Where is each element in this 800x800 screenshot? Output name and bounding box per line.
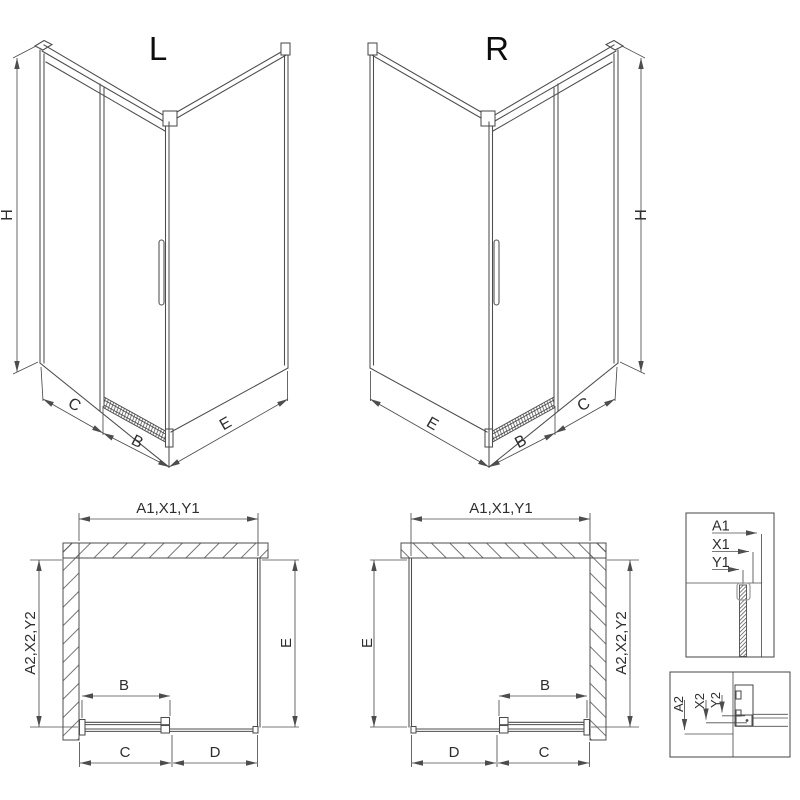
- plan-left-width-label: A1,X1,Y1: [136, 500, 199, 517]
- shower-3d-geometry: [13, 41, 290, 469]
- plan-right-side-label: E: [359, 638, 376, 648]
- left-3d-view-labels: L H C B E: [0, 30, 235, 452]
- corner-cap: [163, 111, 177, 126]
- figure-canvas: L H C B E R H C B E: [0, 0, 800, 800]
- detail-a1-label: A1: [712, 519, 730, 535]
- plan-right-depth-label: A2,X2,Y2: [613, 611, 630, 674]
- dim-label-b-right: B: [512, 432, 529, 452]
- dim-label-c-left: C: [65, 395, 83, 415]
- detail-y1-label: Y1: [712, 555, 730, 571]
- plan-left-d-label: D: [210, 744, 221, 761]
- plan-right-door-label: B: [540, 677, 550, 694]
- technical-drawing-page: L H C B E R H C B E: [0, 0, 800, 800]
- plan-right-d-label: D: [449, 744, 460, 761]
- detail-a2-label: A2: [671, 696, 686, 712]
- door-handle-plan: [161, 718, 170, 725]
- roller-dot: [746, 719, 749, 722]
- plan-left-door-label: B: [119, 677, 129, 694]
- door-handle: [159, 240, 164, 305]
- door-wall-profile: [80, 720, 86, 736]
- detail-x2-label: X2: [692, 693, 707, 709]
- dim-label-b-left: B: [128, 432, 145, 452]
- wall-side: [63, 543, 79, 740]
- shower-plan-geometry-mirrored: [370, 513, 639, 767]
- detail-depth-profile: A2 X2 Y2: [670, 672, 790, 757]
- dim-label-height-left: H: [0, 209, 16, 221]
- plan-left-c-label: C: [120, 744, 131, 761]
- wall-top: [63, 543, 268, 558]
- variant-left-title: L: [149, 30, 167, 67]
- plan-right-c-label: C: [539, 744, 550, 761]
- plan-right-width-label: A1,X1,Y1: [469, 500, 532, 517]
- track-end-cap: [253, 727, 258, 734]
- detail-x1-label: X1: [712, 537, 730, 553]
- plan-left-side-label: E: [278, 638, 295, 648]
- wall-profile-section: [740, 585, 747, 657]
- side-panel-cap: [281, 43, 290, 55]
- shower-3d-geometry-mirrored: [368, 41, 645, 469]
- detail-box-border: [686, 513, 774, 657]
- detail-y2-label: Y2: [708, 692, 723, 708]
- shower-plan-geometry: [30, 513, 299, 767]
- detail-width-profile: A1 X1 Y1: [686, 513, 774, 657]
- dim-label-height-right: H: [633, 209, 650, 221]
- variant-right-title: R: [485, 30, 509, 67]
- dim-label-c-right: C: [575, 395, 593, 415]
- plan-left-depth-label: A2,X2,Y2: [22, 611, 39, 674]
